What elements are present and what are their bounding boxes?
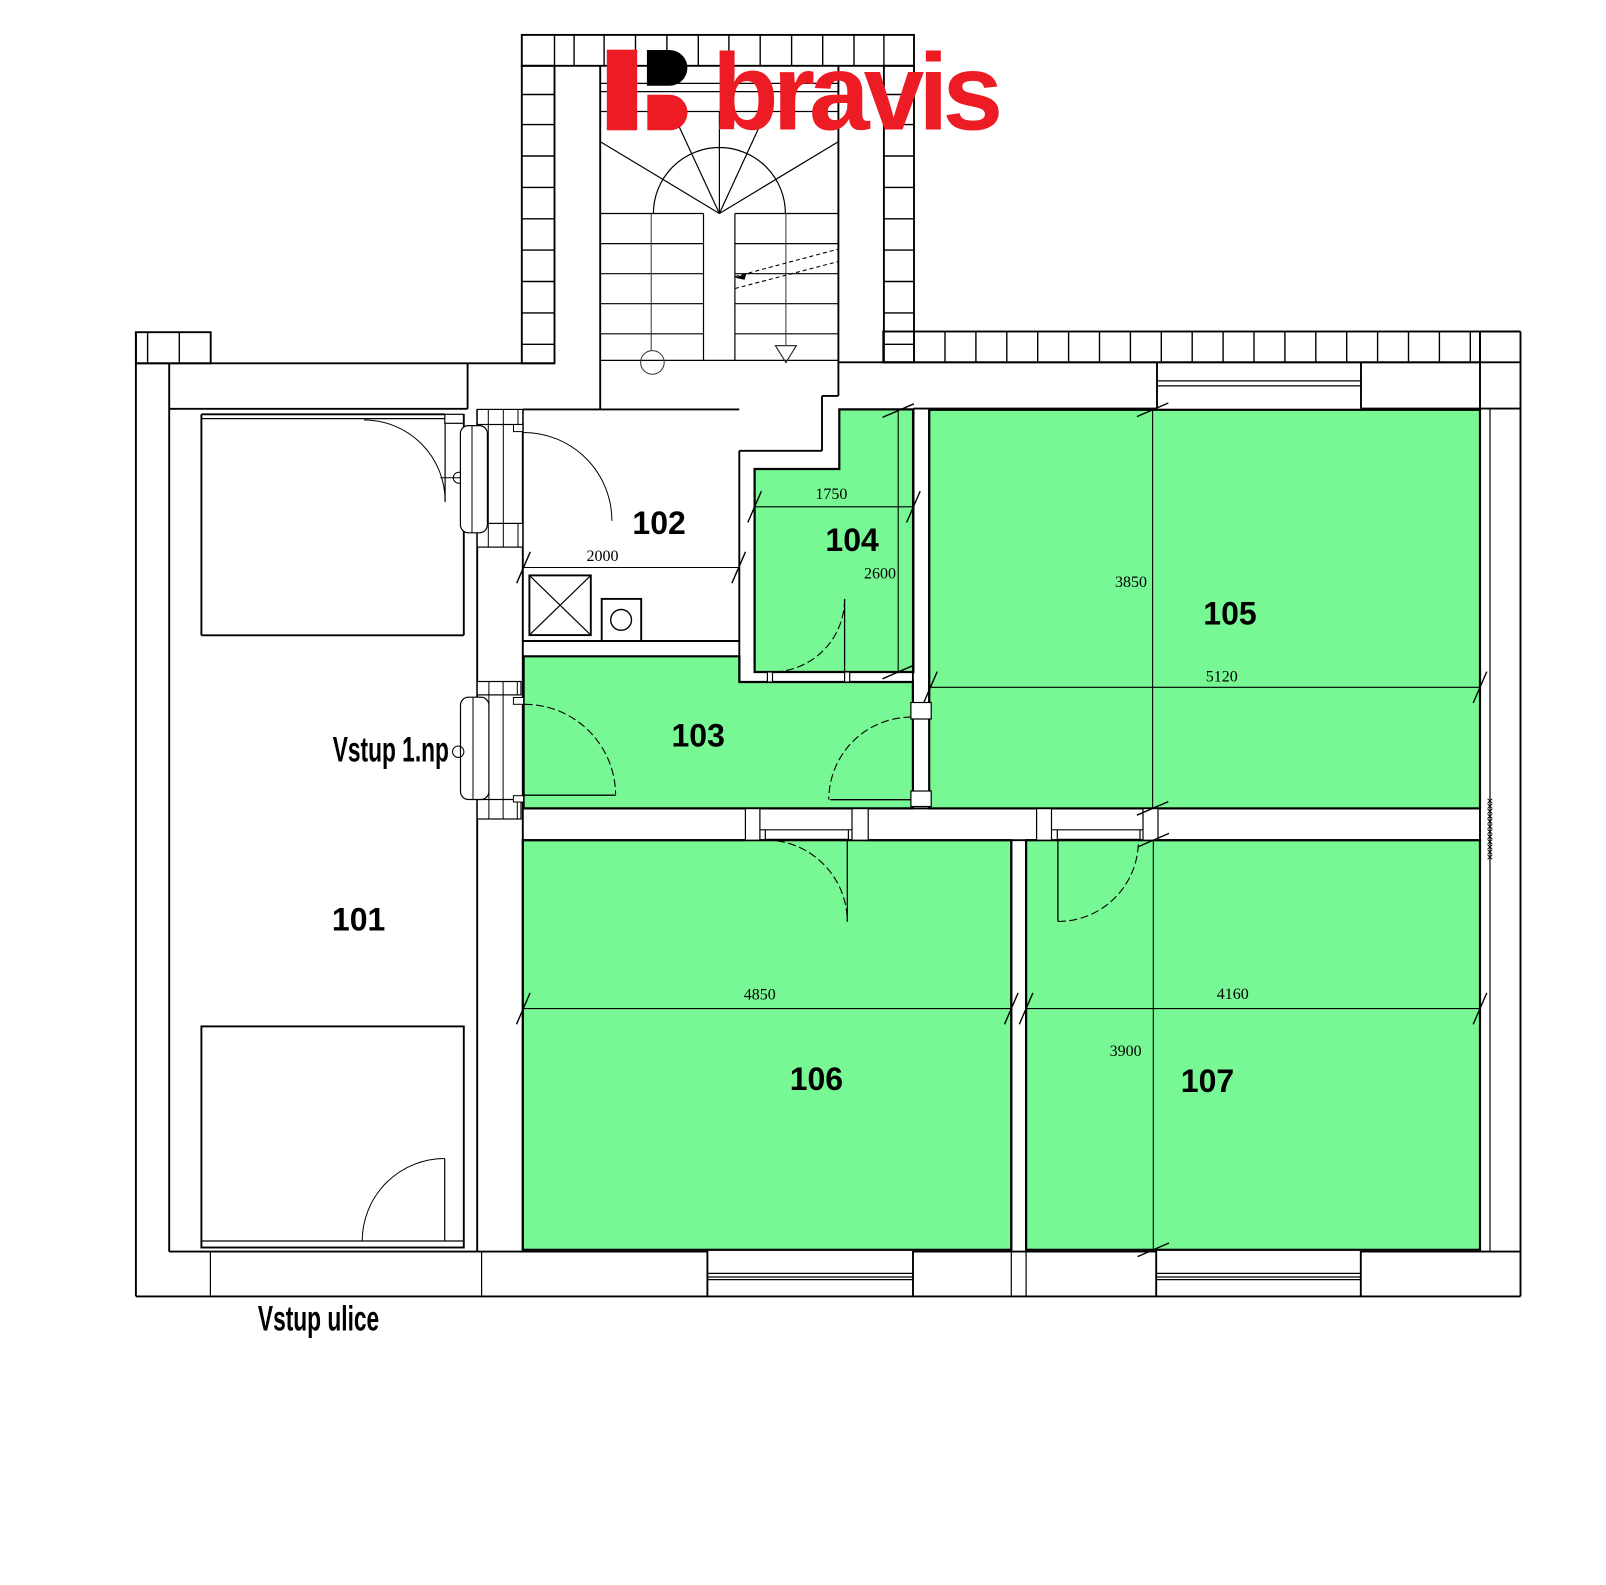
svg-text:3900: 3900 [1110,1043,1142,1060]
svg-text:103: 103 [672,718,725,754]
svg-text:bravis: bravis [712,31,1000,153]
svg-text:Vstup 1.np: Vstup 1.np [333,731,449,770]
svg-text:4160: 4160 [1217,986,1249,1003]
svg-text:3850: 3850 [1115,574,1147,591]
svg-text:Vstup ulice: Vstup ulice [258,1299,379,1338]
svg-text:5120: 5120 [1206,669,1238,686]
svg-text:105: 105 [1203,596,1256,632]
svg-text:102: 102 [632,505,685,541]
svg-text:107: 107 [1181,1063,1234,1099]
svg-text:104: 104 [825,522,879,558]
svg-text:101: 101 [332,902,385,938]
svg-text:1750: 1750 [815,486,847,503]
svg-text:2600: 2600 [864,565,896,582]
svg-text:106: 106 [790,1061,843,1097]
svg-text:4850: 4850 [744,987,776,1004]
svg-text:2000: 2000 [587,548,619,565]
